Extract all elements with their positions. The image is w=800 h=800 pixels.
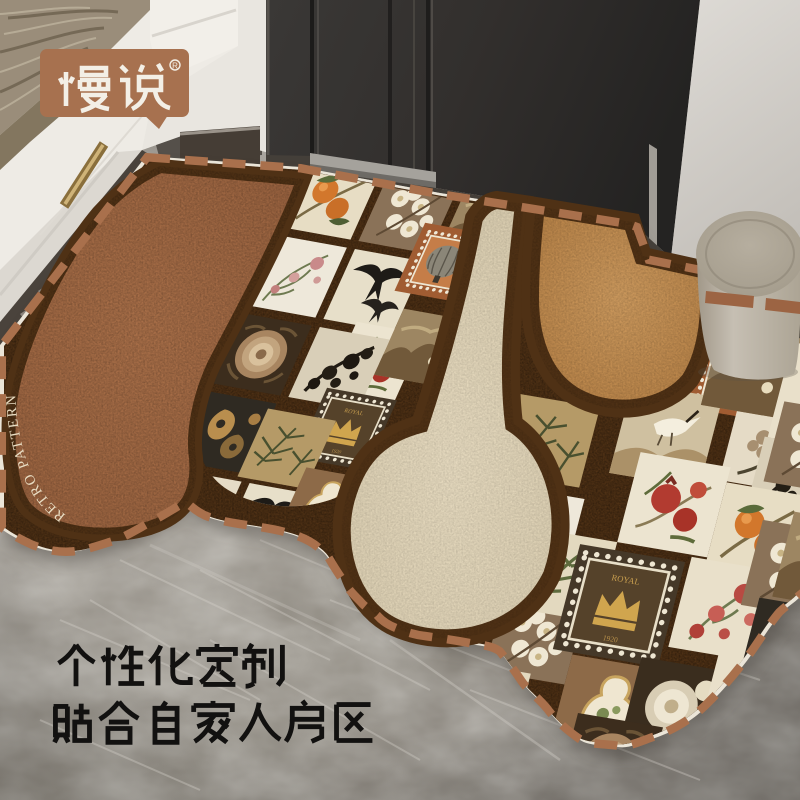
svg-text:R: R <box>172 62 178 71</box>
